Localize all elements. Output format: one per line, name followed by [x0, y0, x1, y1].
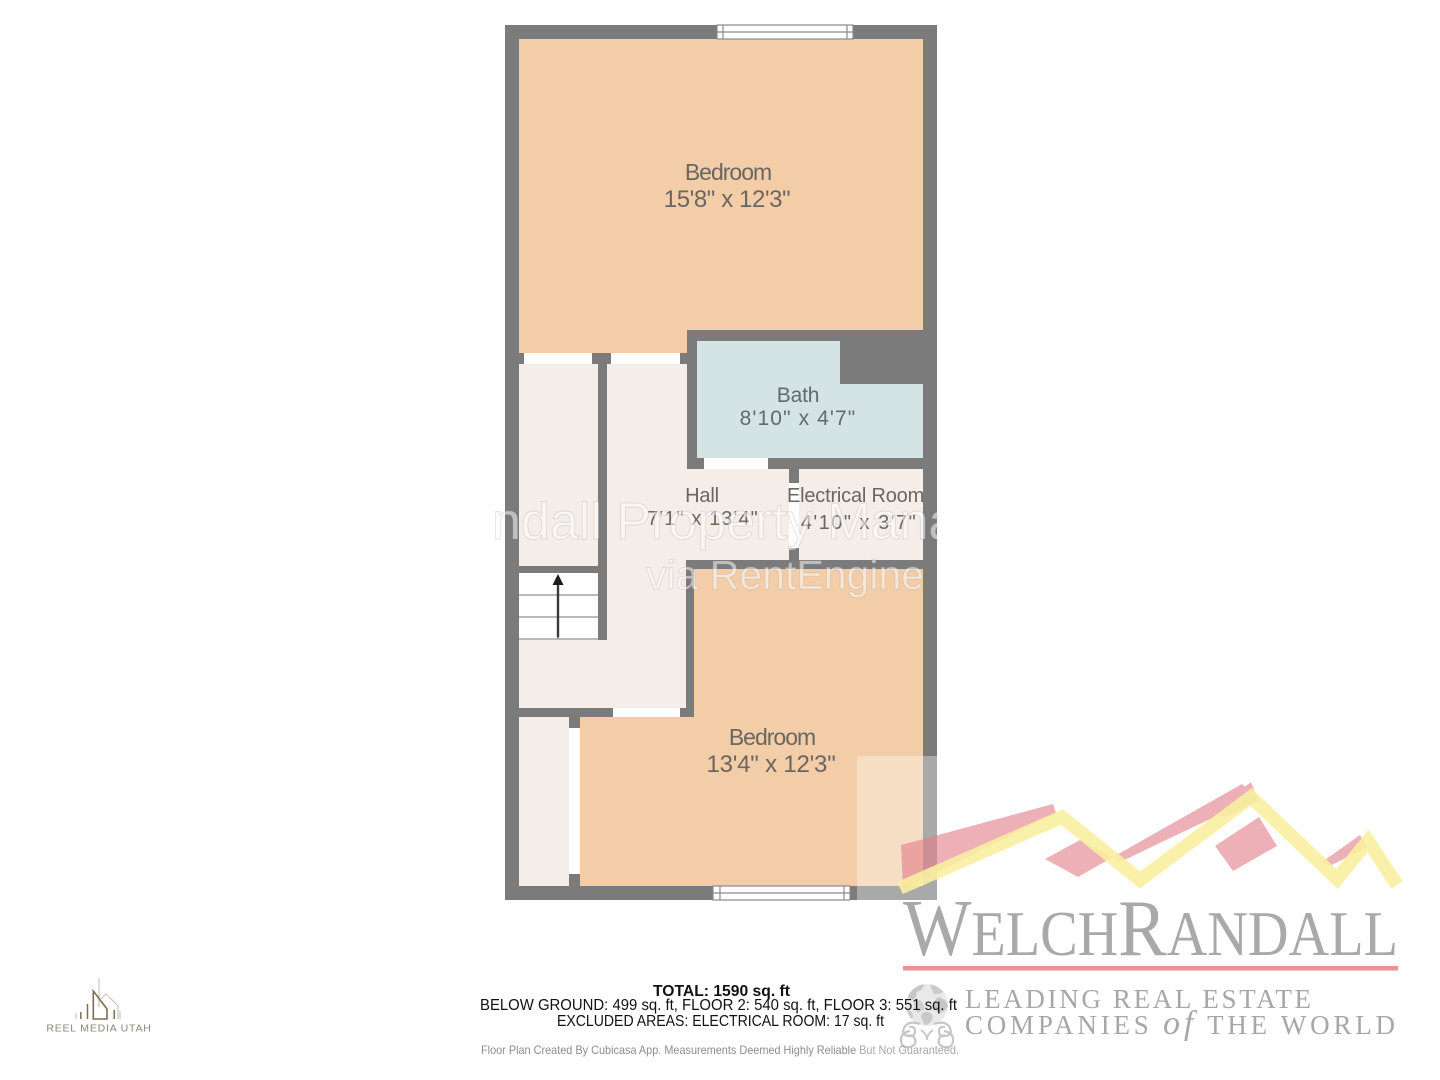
svg-text:EXCLUDED AREAS: ELECTRICAL ROO: EXCLUDED AREAS: ELECTRICAL ROOM: 17 sq. … — [557, 1013, 885, 1030]
svg-text:BELOW GROUND: 499 sq. ft, FLOO: BELOW GROUND: 499 sq. ft, FLOOR 2: 540 s… — [480, 997, 958, 1014]
svg-text:Floor Plan Created By Cubicasa: Floor Plan Created By Cubicasa App. Meas… — [481, 1043, 959, 1057]
svg-text:REEL MEDIA UTAH: REEL MEDIA UTAH — [46, 1023, 151, 1035]
